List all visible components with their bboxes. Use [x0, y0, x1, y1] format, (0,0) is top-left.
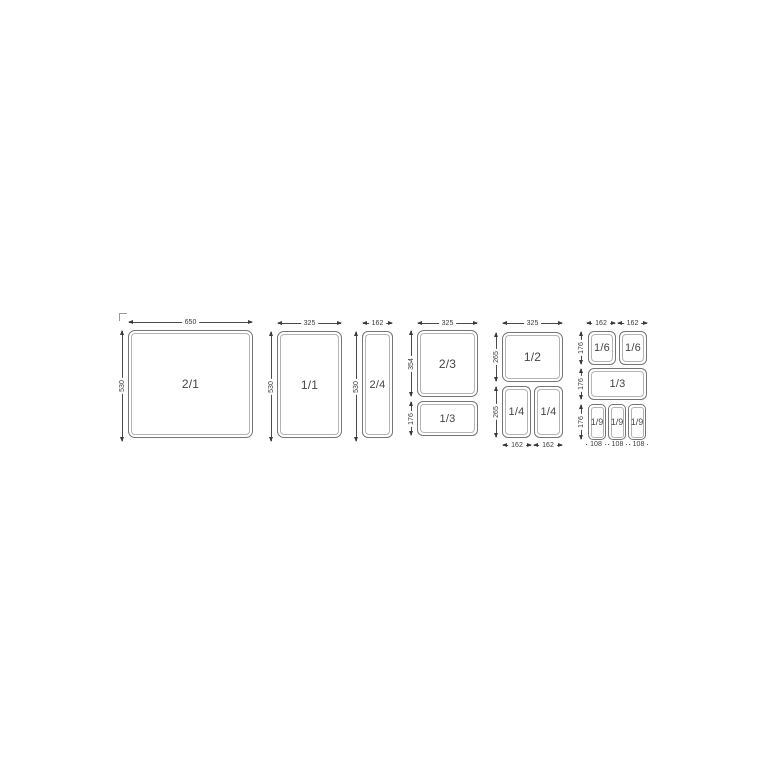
dim-width-162-a: 162	[362, 319, 393, 328]
dim-width-650: 650	[128, 318, 253, 327]
arrow-up-icon	[494, 332, 498, 337]
dim-value: 162	[624, 320, 642, 328]
arrow-right-icon	[248, 320, 253, 324]
pan-1-3-wide: 1/3	[588, 368, 647, 400]
arrow-down-icon	[409, 392, 413, 397]
arrow-left-icon	[128, 320, 133, 324]
dim-value: 325	[439, 320, 457, 328]
dim-height-530-b: 530	[267, 331, 276, 442]
arrow-down-icon	[579, 395, 583, 400]
dim-value: 530	[119, 378, 127, 394]
dim-height-176-c: 176	[577, 368, 586, 400]
dim-value: 265	[493, 404, 501, 420]
arrow-right-icon	[558, 321, 563, 325]
pan-size-label: 1/4	[509, 406, 525, 418]
pan-size-label: 1/6	[625, 342, 641, 354]
witness-tick	[119, 313, 127, 321]
pan-1-9-third: 1/9	[628, 404, 646, 440]
arrow-right-icon	[558, 443, 563, 447]
dim-value: 176	[578, 414, 586, 430]
arrow-left-icon	[533, 443, 538, 447]
dim-height-530-a: 530	[118, 330, 127, 442]
pan-1-6-right: 1/6	[619, 331, 647, 365]
pan-size-label: 2/4	[370, 379, 386, 391]
pan-size-label: 1/9	[611, 417, 624, 427]
dim-height-265-a: 265	[492, 332, 501, 382]
dim-value: 108	[630, 441, 648, 449]
pan-1-3: 1/3	[417, 401, 478, 436]
dim-value: 265	[493, 349, 501, 365]
dim-value: 162	[592, 320, 610, 328]
arrow-left-icon	[417, 321, 422, 325]
dim-width-325-a: 325	[277, 319, 342, 328]
dim-height-265-b: 265	[492, 386, 501, 438]
pan-size-label: 2/3	[439, 357, 456, 371]
arrow-left-icon	[502, 321, 507, 325]
pan-1-4-left: 1/4	[502, 386, 531, 438]
arrow-right-icon	[611, 321, 616, 325]
dim-height-176-d: 176	[577, 404, 586, 440]
dim-width-162-d: 162	[586, 319, 616, 328]
arrow-down-icon	[494, 433, 498, 438]
arrow-down-icon	[494, 377, 498, 382]
dim-width-162-c: 162	[533, 441, 563, 450]
arrow-up-icon	[409, 330, 413, 335]
dim-value: 176	[578, 340, 586, 356]
arrow-left-icon	[362, 321, 367, 325]
arrow-up-icon	[120, 330, 124, 335]
pan-2-3: 2/3	[417, 330, 478, 397]
dim-value: 530	[268, 379, 276, 395]
dim-value: 176	[578, 376, 586, 392]
arrow-down-icon	[579, 360, 583, 365]
dim-width-108-a: 108	[585, 440, 607, 449]
pan-size-label: 1/6	[594, 342, 610, 354]
pan-size-label: 1/3	[610, 378, 626, 390]
pan-size-label: 1/1	[301, 378, 318, 392]
arrow-up-icon	[269, 331, 273, 336]
pan-size-label: 1/3	[440, 413, 456, 425]
arrow-right-icon	[473, 321, 478, 325]
dim-height-354: 354	[407, 330, 416, 397]
dim-value: 162	[508, 442, 526, 450]
dim-width-325-c: 325	[502, 319, 563, 328]
arrow-up-icon	[579, 331, 583, 336]
dim-value: 650	[182, 319, 200, 327]
pan-1-1: 1/1	[277, 331, 342, 438]
dim-value: 108	[587, 441, 605, 449]
dim-height-176-b: 176	[577, 331, 586, 365]
arrow-left-icon	[277, 321, 282, 325]
arrow-down-icon	[409, 431, 413, 436]
arrow-right-icon	[527, 443, 532, 447]
dim-value: 325	[301, 320, 319, 328]
arrow-right-icon	[643, 321, 648, 325]
pan-size-label: 1/9	[631, 417, 644, 427]
pan-size-label: 1/9	[591, 417, 604, 427]
arrow-up-icon	[579, 368, 583, 373]
dim-value: 176	[408, 411, 416, 427]
dim-value: 530	[353, 379, 361, 395]
pan-2-1: 2/1	[128, 330, 253, 438]
gastronorm-size-diagram: 650 530 2/1 325 530 1/1 162 530 2/4	[0, 0, 770, 770]
dim-width-325-b: 325	[417, 319, 478, 328]
dim-value: 162	[539, 442, 557, 450]
arrow-left-icon	[617, 321, 622, 325]
pan-1-4-right: 1/4	[534, 386, 563, 438]
pan-size-label: 2/1	[182, 377, 199, 391]
pan-size-label: 1/4	[541, 406, 557, 418]
arrow-left-icon	[502, 443, 507, 447]
dim-value: 108	[609, 441, 627, 449]
arrow-down-icon	[269, 437, 273, 442]
pan-size-label: 1/2	[524, 350, 541, 364]
dim-value: 325	[524, 320, 542, 328]
dim-width-162-b: 162	[502, 441, 532, 450]
dim-height-176-a: 176	[407, 401, 416, 436]
dim-width-108-c: 108	[628, 440, 649, 449]
arrow-up-icon	[354, 331, 358, 336]
arrow-right-icon	[388, 321, 393, 325]
pan-2-4: 2/4	[362, 331, 393, 438]
arrow-down-icon	[120, 437, 124, 442]
dim-width-108-b: 108	[607, 440, 628, 449]
pan-1-9-second: 1/9	[608, 404, 626, 440]
arrow-down-icon	[579, 435, 583, 440]
pan-1-9-first: 1/9	[588, 404, 606, 440]
pan-1-2: 1/2	[502, 332, 563, 382]
arrow-down-icon	[354, 437, 358, 442]
arrow-up-icon	[579, 404, 583, 409]
dim-height-530-c: 530	[352, 331, 361, 442]
dim-value: 354	[408, 356, 416, 372]
arrow-right-icon	[337, 321, 342, 325]
arrow-up-icon	[494, 386, 498, 391]
dim-value: 162	[369, 320, 387, 328]
arrow-left-icon	[586, 321, 591, 325]
dim-width-162-e: 162	[617, 319, 648, 328]
pan-1-6-left: 1/6	[588, 331, 616, 365]
arrow-up-icon	[409, 401, 413, 406]
